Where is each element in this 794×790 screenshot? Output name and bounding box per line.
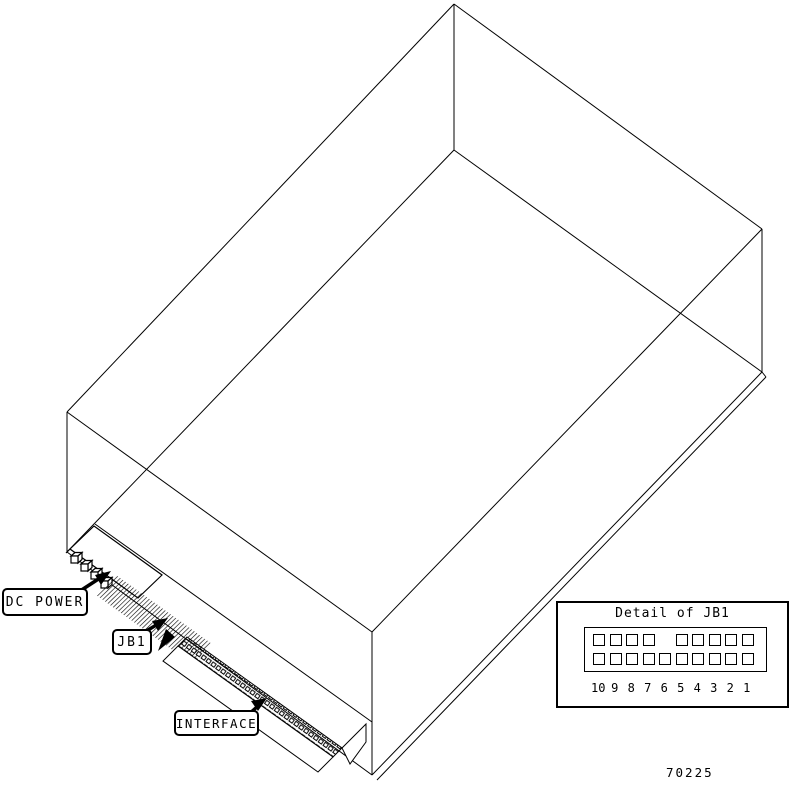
jb1-detail-pin-number-9: 9 [607, 681, 624, 695]
jb1-detail-pin-top-1 [742, 634, 754, 646]
jb1-detail-pin-top-3 [709, 634, 721, 646]
jb1-detail-pin-top-4 [692, 634, 704, 646]
jb1-detail-pin-row-bottom [593, 653, 754, 665]
jb1-detail-pin-bottom-3 [709, 653, 721, 665]
jb1-detail-pin-number-4: 4 [689, 681, 706, 695]
callout-jb1-label: JB1 [117, 635, 146, 650]
jb1-detail-pin-bottom-7 [643, 653, 655, 665]
jb1-detail-pin-number-10: 10 [590, 681, 607, 695]
jb1-detail-pin-number-2: 2 [722, 681, 739, 695]
jb1-detail-pin-top-7 [643, 634, 655, 646]
jb1-detail-pin-top-9 [610, 634, 622, 646]
jb1-detail-pin-number-5: 5 [673, 681, 690, 695]
technical-figure-page: { "diagram": { "callouts": { "dc_power":… [0, 0, 794, 790]
jb1-detail-title: Detail of JB1 [558, 606, 787, 621]
jb1-detail-inset: Detail of JB1 10987654321 [556, 601, 789, 708]
jb1-detail-pin-number-7: 7 [640, 681, 657, 695]
callout-interface: INTERFACE [174, 710, 259, 736]
jb1-detail-pin-top-5 [676, 634, 688, 646]
jb1-detail-pin-number-1: 1 [739, 681, 756, 695]
jb1-detail-pin-bottom-5 [676, 653, 688, 665]
jb1-detail-pin-top-6 [659, 634, 671, 646]
jb1-detail-pin-bottom-8 [626, 653, 638, 665]
callout-jb1: JB1 [112, 629, 152, 655]
jb1-detail-pin-bottom-6 [659, 653, 671, 665]
jb1-detail-pin-top-8 [626, 634, 638, 646]
interface-connector-drawing [163, 637, 366, 772]
jb1-detail-pin-bottom-4 [692, 653, 704, 665]
callout-interface-label: INTERFACE [176, 716, 257, 731]
jb1-detail-pin-bottom-9 [610, 653, 622, 665]
jb1-detail-connector-outline [584, 627, 767, 672]
jb1-detail-pin-numbers: 10987654321 [590, 681, 755, 695]
callout-dc-power: DC POWER [2, 588, 88, 616]
jb1-detail-pin-bottom-10 [593, 653, 605, 665]
jb1-detail-pin-bottom-2 [725, 653, 737, 665]
jb1-detail-pin-number-8: 8 [623, 681, 640, 695]
callout-dc-power-label: DC POWER [6, 595, 85, 610]
jb1-detail-pin-row-top [593, 634, 754, 646]
jb1-detail-pin-top-10 [593, 634, 605, 646]
jb1-detail-pin-bottom-1 [742, 653, 754, 665]
jb1-detail-pin-top-2 [725, 634, 737, 646]
jb1-detail-pin-number-3: 3 [706, 681, 723, 695]
jb1-detail-pin-number-6: 6 [656, 681, 673, 695]
figure-number: 70225 [666, 765, 714, 780]
